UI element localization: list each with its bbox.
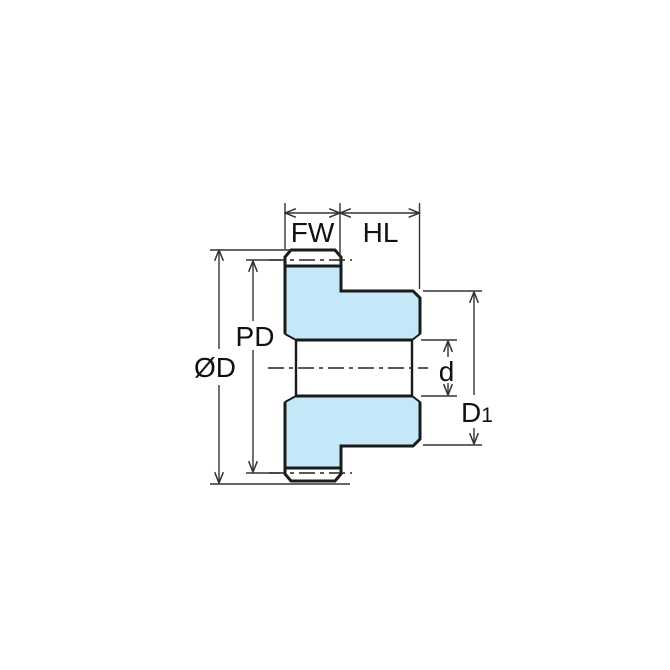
label-bore-diameter: d xyxy=(439,356,455,387)
spur-gear-cross-section-diagram: FW HL ØD PD d D1 xyxy=(0,0,670,670)
gear-drawing-canvas: FW HL ØD PD d D1 xyxy=(0,0,670,670)
label-outside-diameter: ØD xyxy=(194,352,236,383)
label-hub-diameter-subscript: 1 xyxy=(481,404,493,427)
tooth-profile-bottom xyxy=(285,468,341,481)
label-hub-diameter: D1 xyxy=(461,397,493,428)
label-face-width: FW xyxy=(291,217,335,248)
tooth-profile-top xyxy=(285,250,341,266)
label-pitch-diameter: PD xyxy=(236,321,275,352)
label-hub-diameter-main: D xyxy=(461,397,481,428)
label-hub-length: HL xyxy=(363,217,399,248)
